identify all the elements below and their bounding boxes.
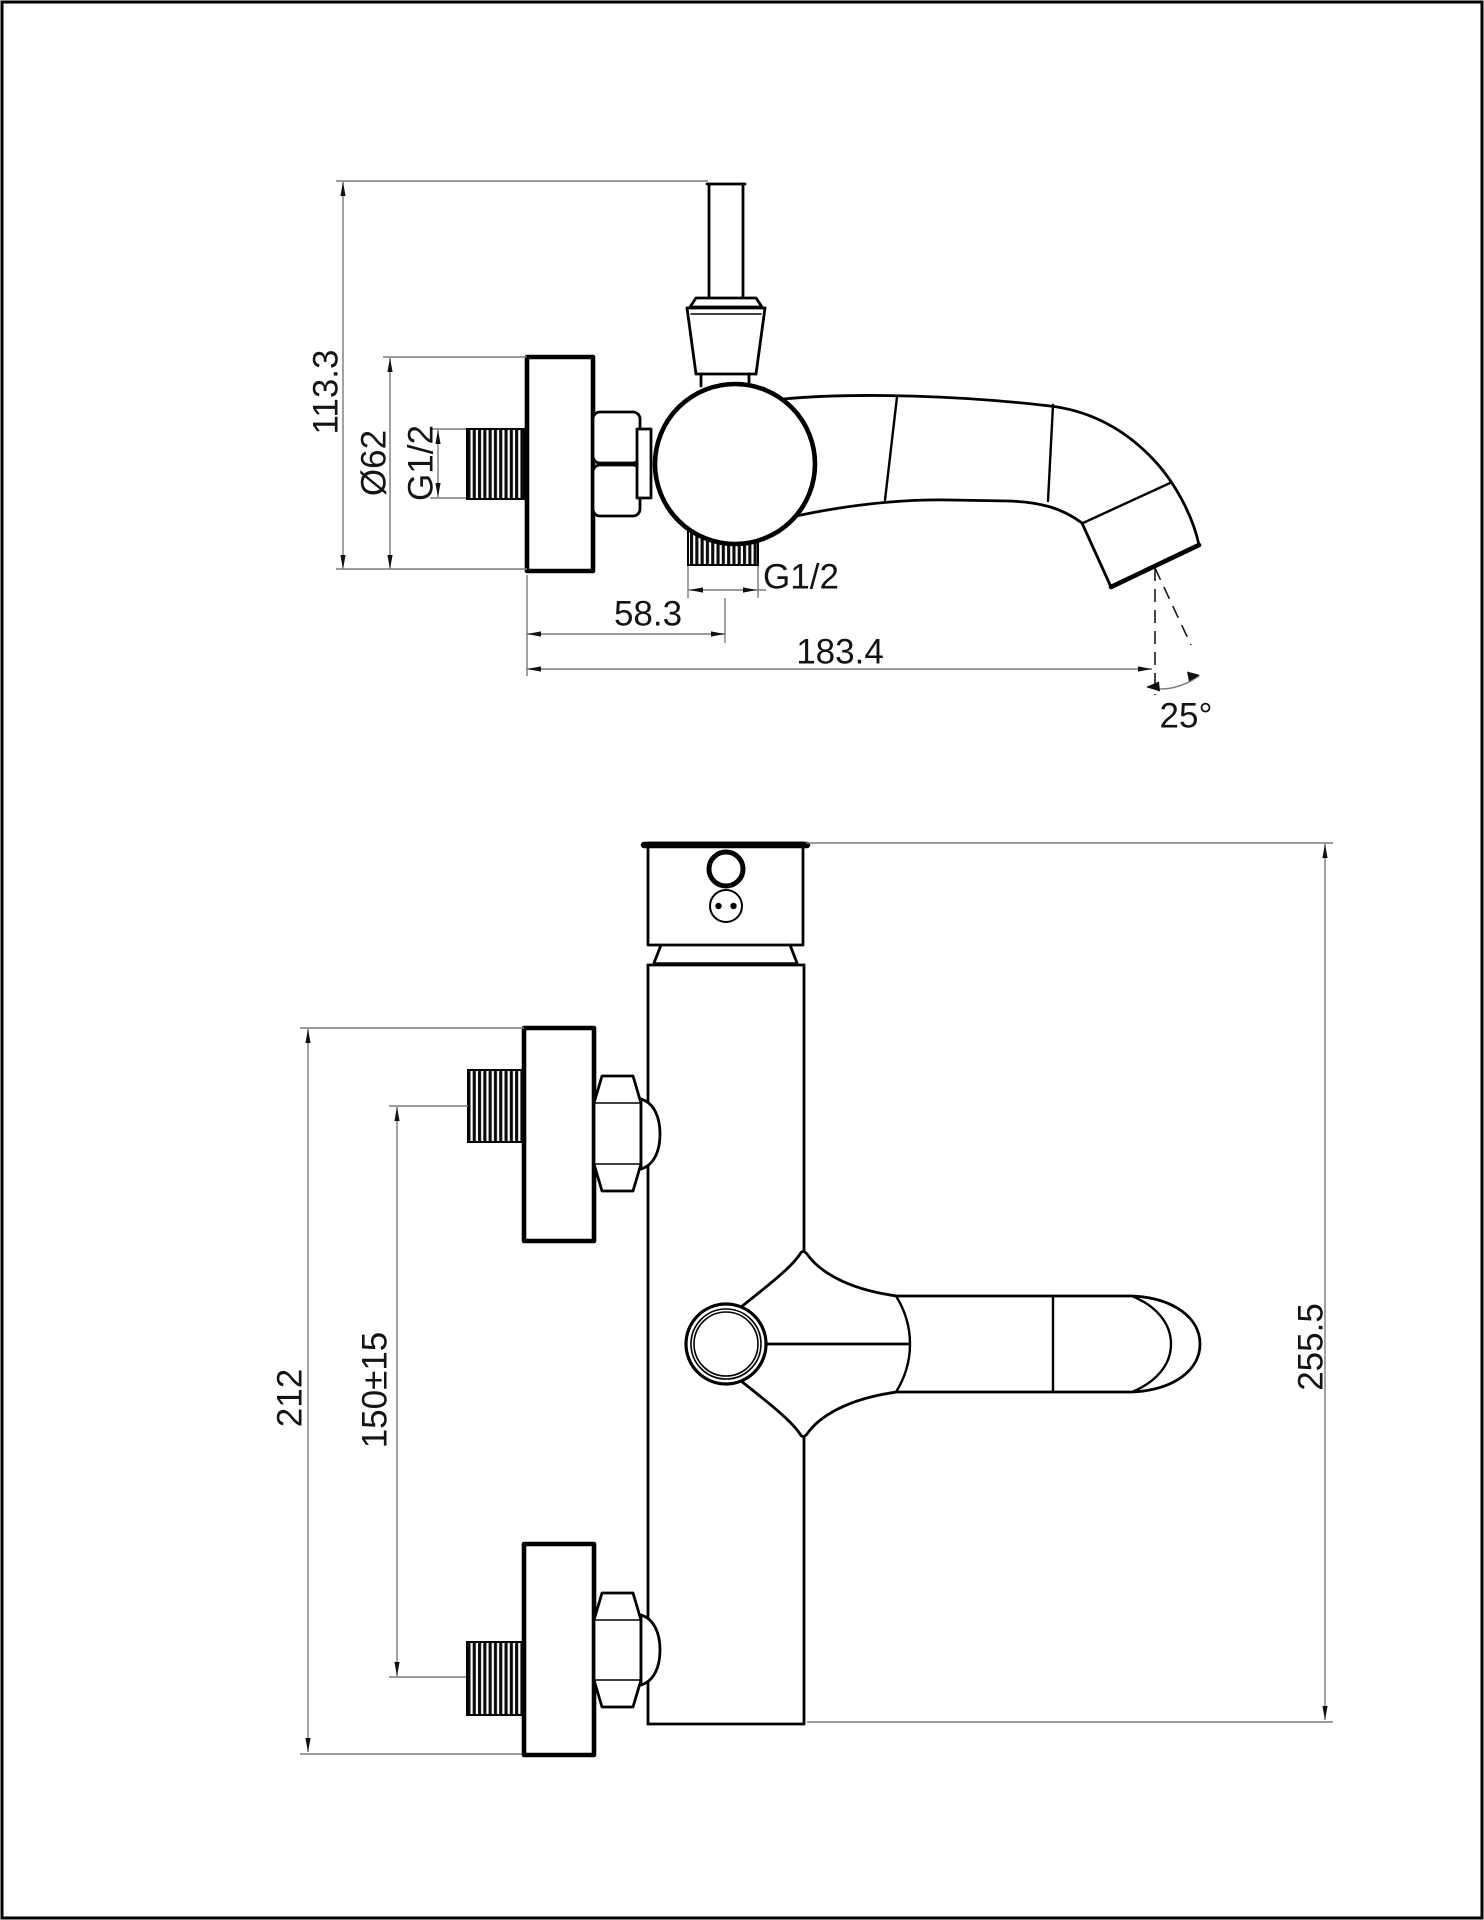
lower-hex-nut: [594, 1593, 641, 1707]
upper-wall-flange: [524, 1028, 594, 1241]
diverter-face-circle: [710, 890, 742, 922]
front-view: 212 150±15 255.5: [271, 843, 1334, 1755]
inlet-thread-side: [467, 429, 524, 499]
collar: [637, 429, 651, 498]
hex-nut-lower-half: [593, 465, 640, 516]
wall-flange-side: [527, 357, 593, 571]
cone-right: [756, 308, 765, 374]
dim-label-flange-outer-span: 212: [271, 1369, 310, 1427]
dim-label-inlet-center-distance: 150±15: [356, 1332, 395, 1449]
handle-knob-outer-ring: [686, 1304, 766, 1384]
dim-label-inlet-thread: G1/2: [402, 425, 441, 501]
diverter-hole-right: [730, 903, 736, 909]
lower-inlet-thread: [467, 1642, 523, 1715]
side-view: 113.3 Ø62 G1/2 G1/2: [307, 181, 1213, 736]
dim-label-wall-to-outlet: 58.3: [614, 595, 682, 634]
hex-nut-upper-half: [593, 412, 640, 463]
dim-label-front-overall-height: 255.5: [1292, 1303, 1331, 1391]
lower-wall-flange: [524, 1544, 594, 1755]
drawing-svg: 113.3 Ø62 G1/2 G1/2: [0, 0, 1484, 1920]
upper-hex-nut: [594, 1076, 641, 1191]
neck-groove-right: [790, 945, 797, 963]
dim-label-spout-angle: 25°: [1160, 697, 1213, 736]
spout-side: [783, 395, 1199, 587]
cone-left: [687, 308, 696, 374]
lever-skirt: [690, 298, 762, 307]
dim-label-outlet-thread: G1/2: [763, 558, 839, 597]
valve-body-circle: [655, 384, 815, 544]
upper-inlet-thread: [468, 1070, 524, 1142]
dim-label-side-overall-height: 113.3: [307, 350, 346, 435]
neck-groove-left: [654, 945, 661, 963]
technical-drawing-canvas: 113.3 Ø62 G1/2 G1/2: [0, 0, 1484, 1920]
diverter-hole-left: [715, 903, 721, 909]
dim-label-wall-to-spout-tip: 183.4: [796, 633, 884, 672]
dim-label-flange-diameter: Ø62: [355, 430, 394, 496]
